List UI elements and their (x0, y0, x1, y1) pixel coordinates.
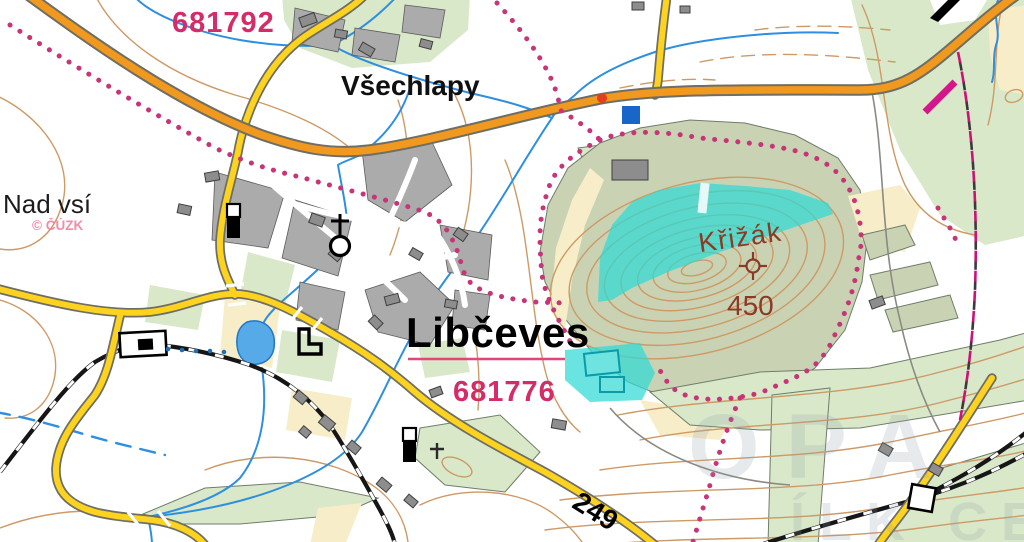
strip-2 (870, 262, 938, 300)
boundary-node (597, 93, 607, 103)
elevation-label: 450 (727, 290, 774, 321)
parcel-number-bottom: 681776 (453, 376, 556, 408)
pond (237, 321, 275, 364)
parcel-number-top: 681792 (172, 7, 275, 39)
locality-label: Nad vsí (3, 189, 92, 219)
farm-building-2 (600, 377, 624, 392)
water-reservoir-symbol (622, 106, 640, 124)
tower-icon (227, 204, 240, 238)
tower-icon (403, 428, 416, 462)
cemetery-area (415, 415, 540, 492)
attribution-label: © ČÚZK (32, 218, 83, 233)
watermark-line2: ÍLK CEL (790, 492, 1024, 542)
watermark-line1: OPA (688, 396, 959, 498)
village-label-vsechlapy: Všechlapy (341, 70, 480, 101)
railway-station-icon (119, 331, 166, 357)
map-svg: OPA ÍLK CEL 681792 Všechlapy Nad vsí © Č… (0, 0, 1024, 542)
topographic-map-canvas[interactable]: OPA ÍLK CEL 681792 Všechlapy Nad vsí © Č… (0, 0, 1024, 542)
village-label-libceves: Libčeves (406, 309, 590, 356)
